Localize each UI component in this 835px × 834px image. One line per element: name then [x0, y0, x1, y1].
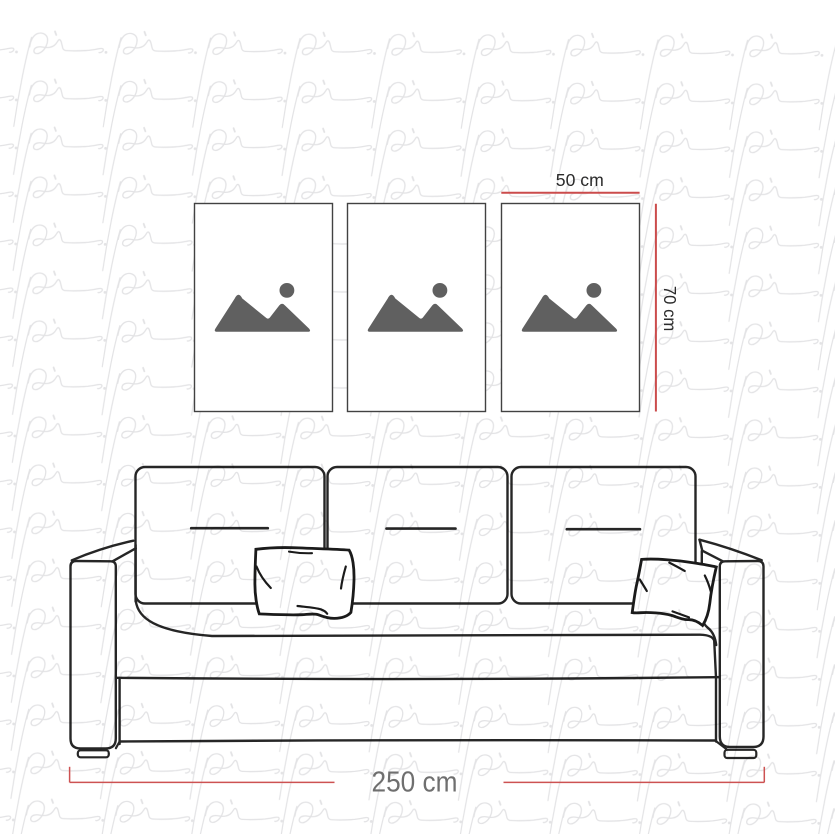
svg-text:50 cm: 50 cm	[556, 170, 604, 190]
svg-text:250 cm: 250 cm	[372, 767, 458, 799]
svg-text:70 cm: 70 cm	[660, 286, 680, 332]
